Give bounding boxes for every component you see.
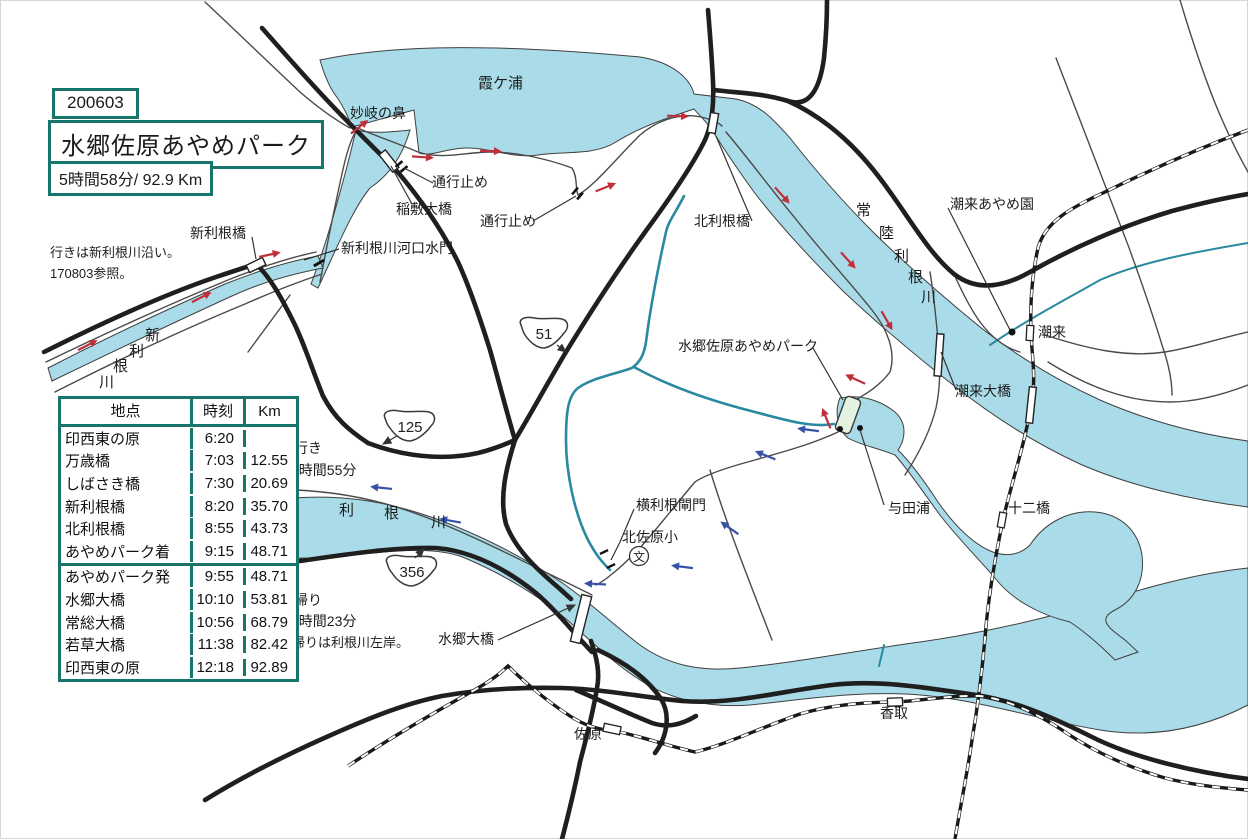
table-row: 印西東の原6:20: [61, 427, 296, 450]
table-row: あやめパーク発9:5548.71: [61, 566, 296, 589]
itako-station: [1026, 325, 1034, 340]
route-125-road: [368, 440, 515, 457]
table-row: しばさき橋7:3020.69: [61, 472, 296, 495]
table-row: 若草大橋11:3882.42: [61, 633, 296, 656]
katori-station: [887, 698, 902, 707]
waypoint-table: 地点時刻Km 印西東の原6:20万歳橋7:0312.55しばさき橋7:3020.…: [58, 396, 299, 682]
table-header-1: 時刻: [193, 399, 246, 424]
school-symbol: 文: [630, 547, 649, 566]
junibashi-station: [997, 512, 1006, 528]
return-section: あやめパーク発9:5548.71水郷大橋10:1053.81常総大橋10:566…: [61, 566, 296, 679]
waypoint-table-header: 地点時刻Km: [61, 399, 296, 427]
svg-text:125: 125: [397, 419, 422, 436]
table-row: 水郷大橋10:1053.81: [61, 588, 296, 611]
route-shield-356: 356: [386, 549, 436, 586]
table-row: 新利根橋8:2035.70: [61, 495, 296, 518]
table-row: 常総大橋10:5668.79: [61, 611, 296, 634]
route-shield-125: 125: [383, 410, 435, 444]
route-shield-51: 51: [520, 317, 567, 352]
yokotone-river-channel: [566, 196, 834, 570]
table-row: 北利根橋8:5543.73: [61, 517, 296, 540]
trip-date-badge: 200603: [52, 88, 139, 119]
table-row: あやめパーク着9:1548.71: [61, 540, 296, 563]
svg-text:356: 356: [399, 564, 424, 581]
svg-text:51: 51: [536, 326, 553, 343]
table-header-0: 地点: [61, 399, 193, 424]
sawara-station: [603, 723, 621, 734]
label-leader-lines: [252, 136, 1010, 640]
table-row: 印西東の原12:1892.89: [61, 656, 296, 679]
trip-summary-badge: 5時間58分/ 92.9 Km: [48, 161, 213, 196]
map-page: 文: [0, 0, 1248, 839]
outbound-section: 印西東の原6:20万歳橋7:0312.55しばさき橋7:3020.69新利根橋8…: [61, 427, 296, 566]
table-row: 万歳橋7:0312.55: [61, 450, 296, 473]
table-header-2: Km: [246, 399, 293, 424]
road-closed-markers: [395, 160, 584, 200]
svg-text:文: 文: [633, 549, 645, 564]
lagoon-myogi: [311, 130, 410, 288]
shintone-river: [48, 256, 323, 381]
